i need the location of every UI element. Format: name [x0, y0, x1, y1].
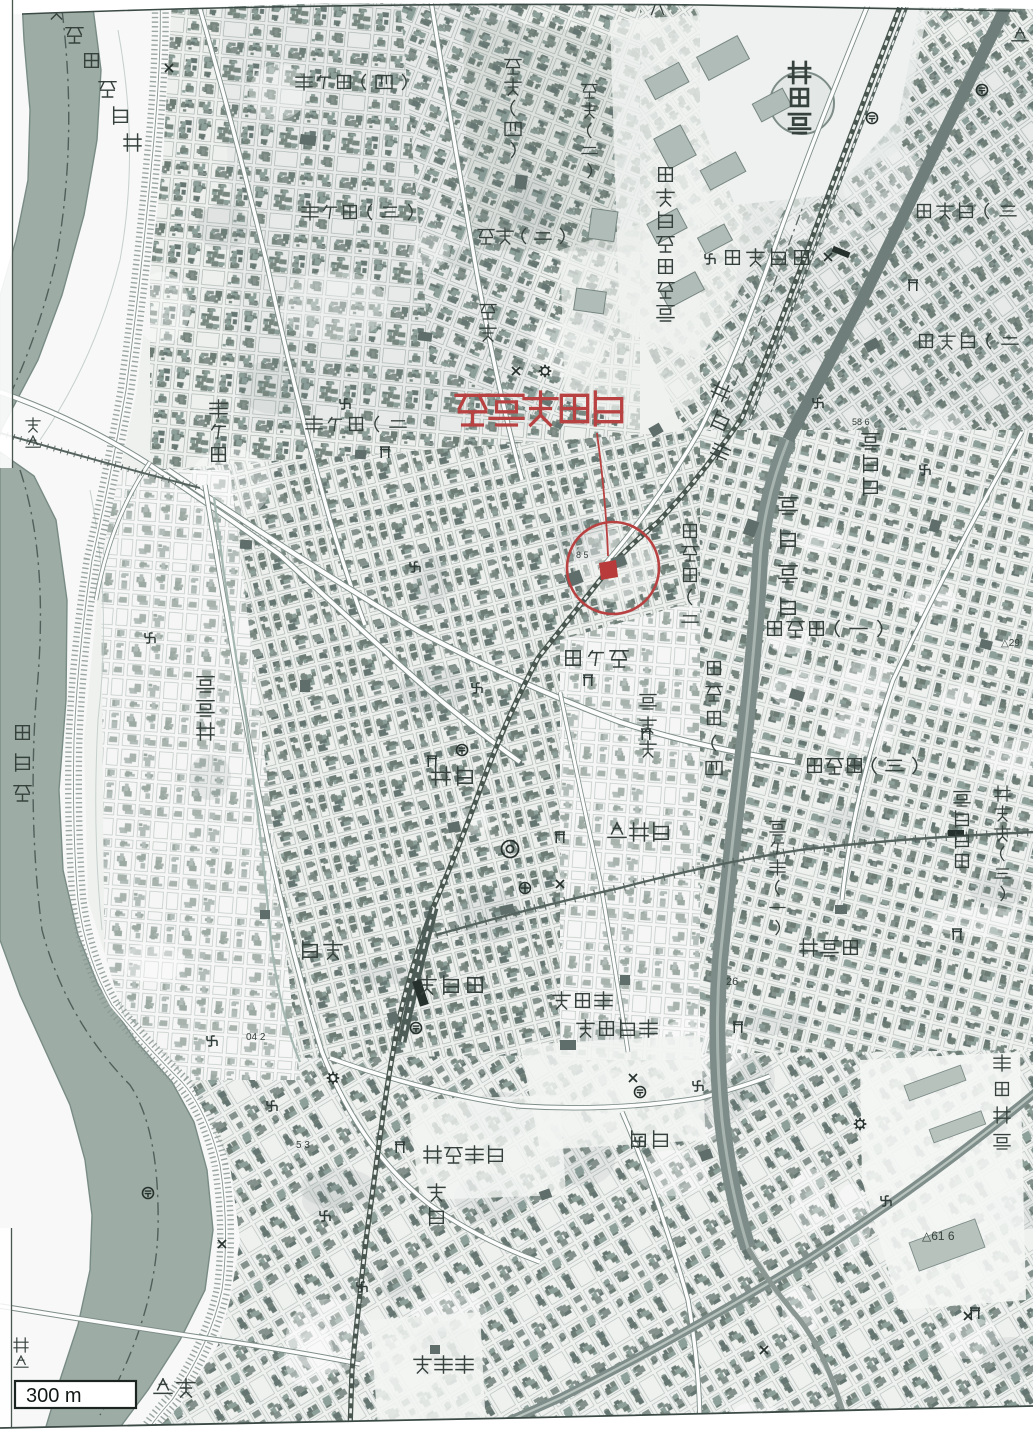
svg-text:8 5: 8 5 [576, 550, 589, 560]
svg-text:△61 6: △61 6 [922, 1229, 955, 1243]
svg-text:58 6: 58 6 [852, 417, 870, 427]
svg-text:300 m: 300 m [26, 1385, 82, 1407]
svg-text:26: 26 [726, 976, 738, 988]
svg-text:△29: △29 [1001, 638, 1020, 649]
svg-text:5 3: 5 3 [296, 1140, 310, 1151]
svg-text:04 2: 04 2 [246, 1032, 266, 1043]
